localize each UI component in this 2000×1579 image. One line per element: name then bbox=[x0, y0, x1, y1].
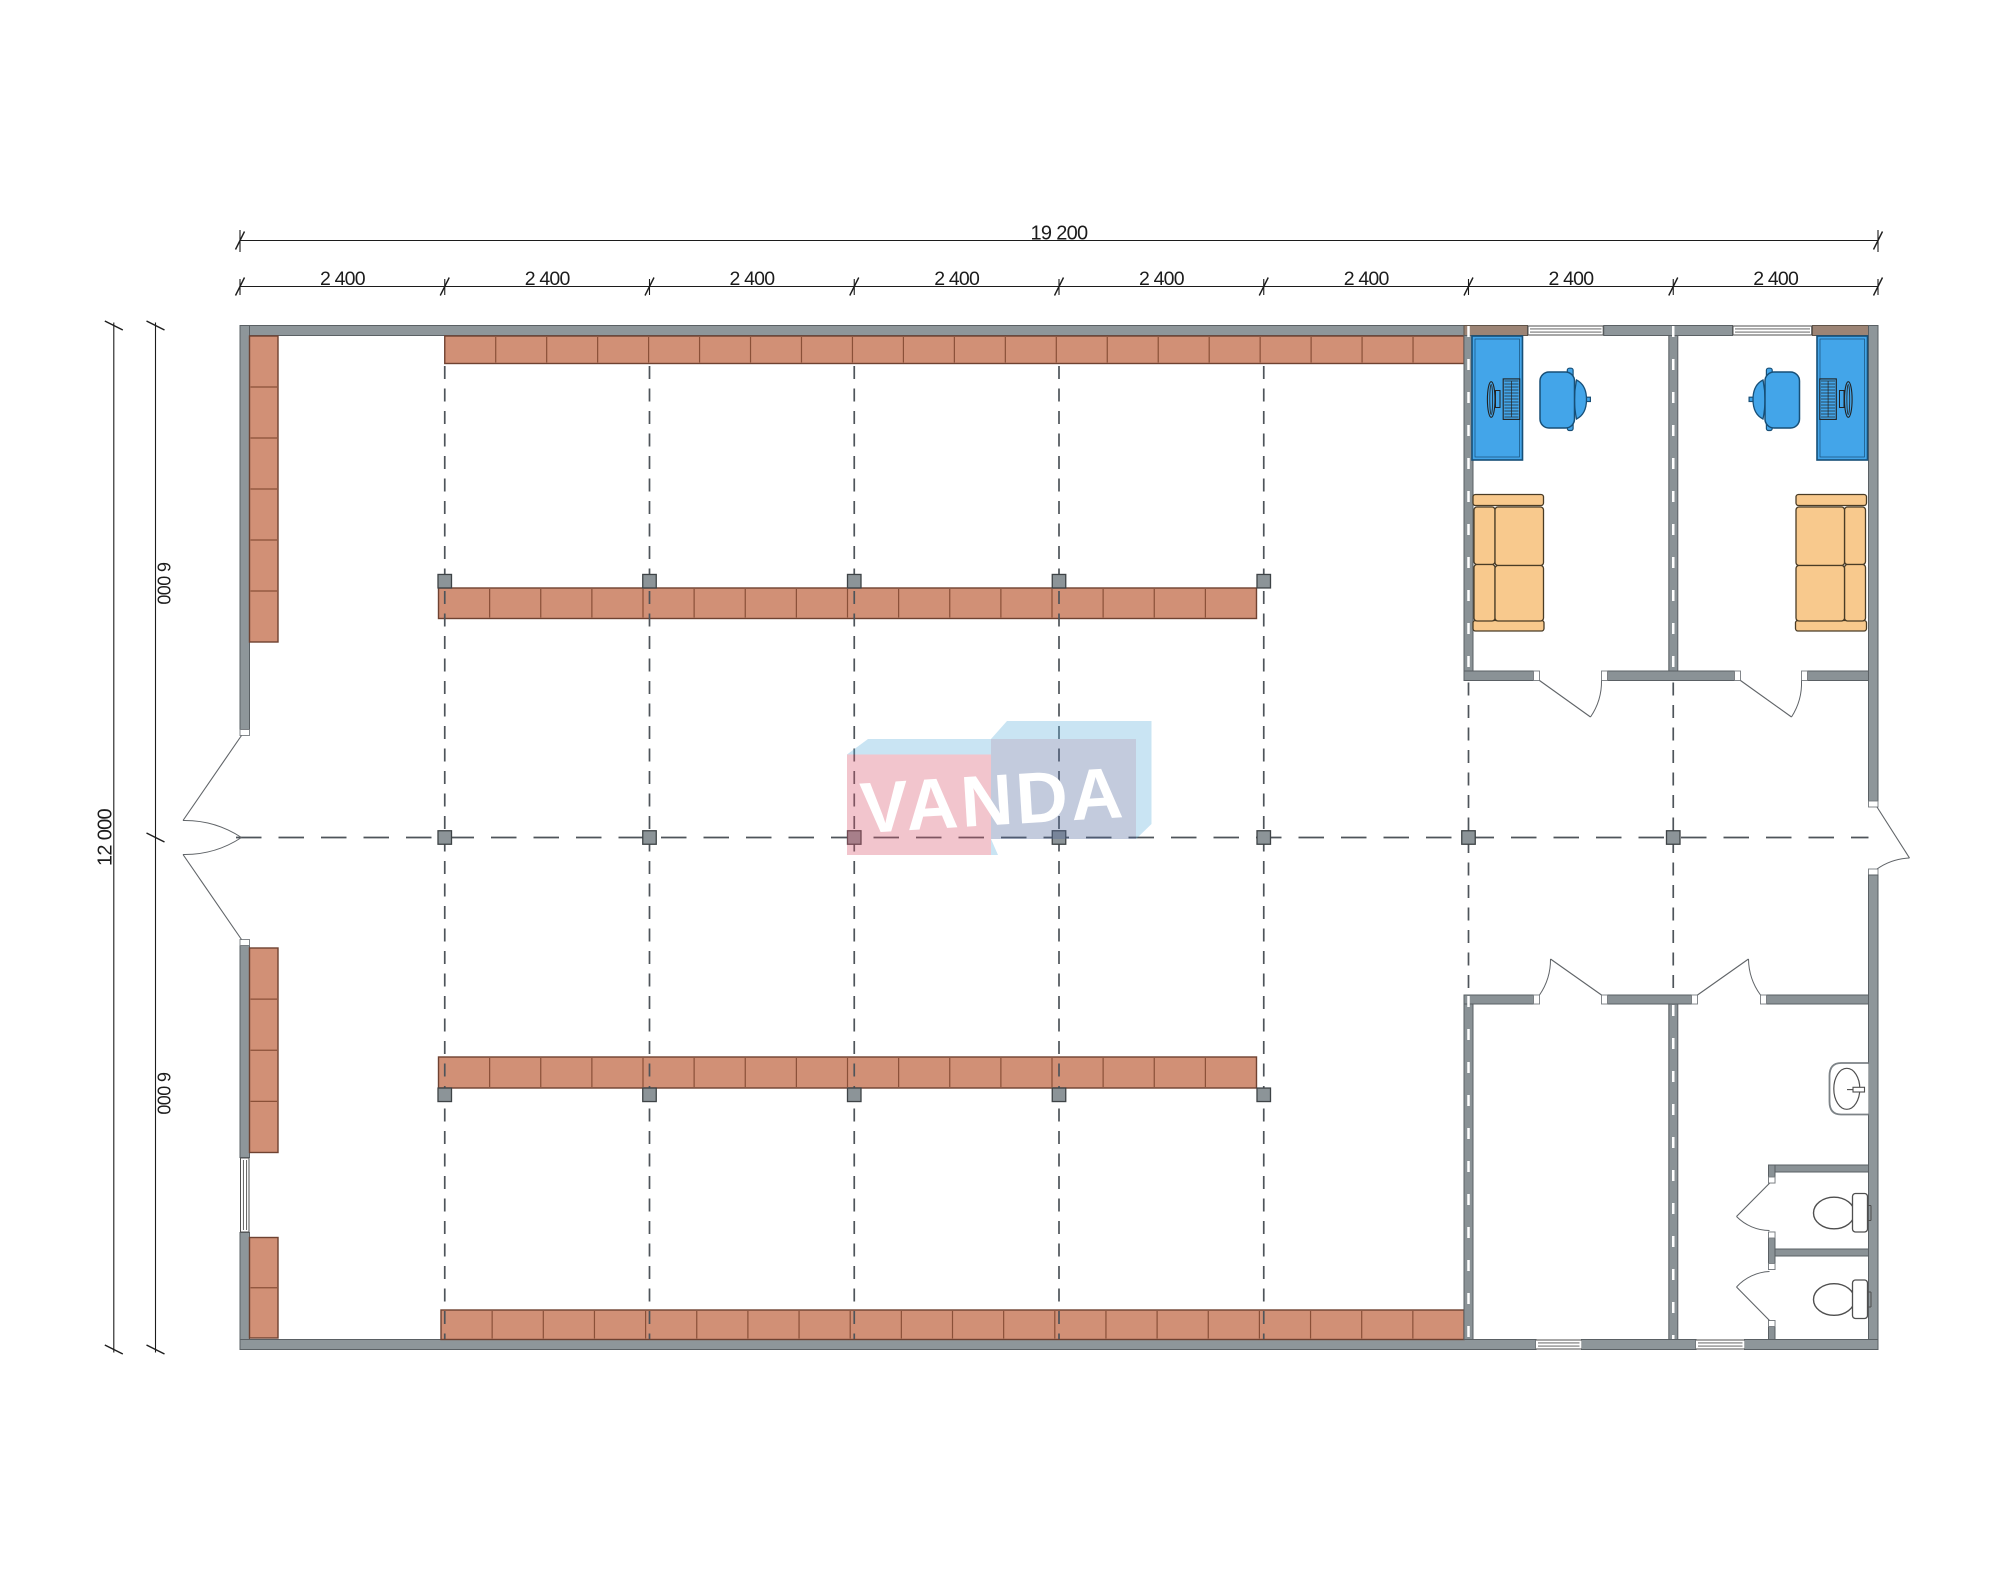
svg-text:6 000: 6 000 bbox=[154, 1072, 174, 1115]
svg-text:2 400: 2 400 bbox=[934, 268, 980, 290]
svg-text:19 200: 19 200 bbox=[1031, 223, 1089, 245]
svg-text:6 000: 6 000 bbox=[154, 562, 174, 605]
svg-text:2 400: 2 400 bbox=[525, 268, 571, 290]
svg-text:2 400: 2 400 bbox=[1548, 268, 1594, 290]
svg-text:VANDA: VANDA bbox=[858, 753, 1128, 849]
svg-text:12 000: 12 000 bbox=[95, 808, 117, 866]
svg-text:2 400: 2 400 bbox=[320, 268, 366, 290]
svg-text:2 400: 2 400 bbox=[1753, 268, 1799, 290]
svg-text:2 400: 2 400 bbox=[1344, 268, 1390, 290]
svg-text:2 400: 2 400 bbox=[1139, 268, 1185, 290]
svg-text:2 400: 2 400 bbox=[729, 268, 775, 290]
